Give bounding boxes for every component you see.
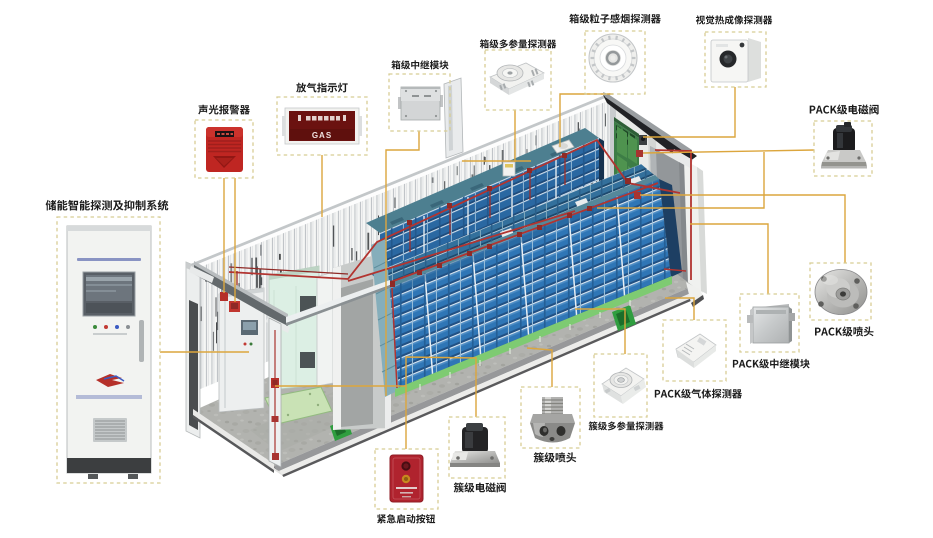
svg-text:GAS: GAS	[312, 131, 332, 140]
